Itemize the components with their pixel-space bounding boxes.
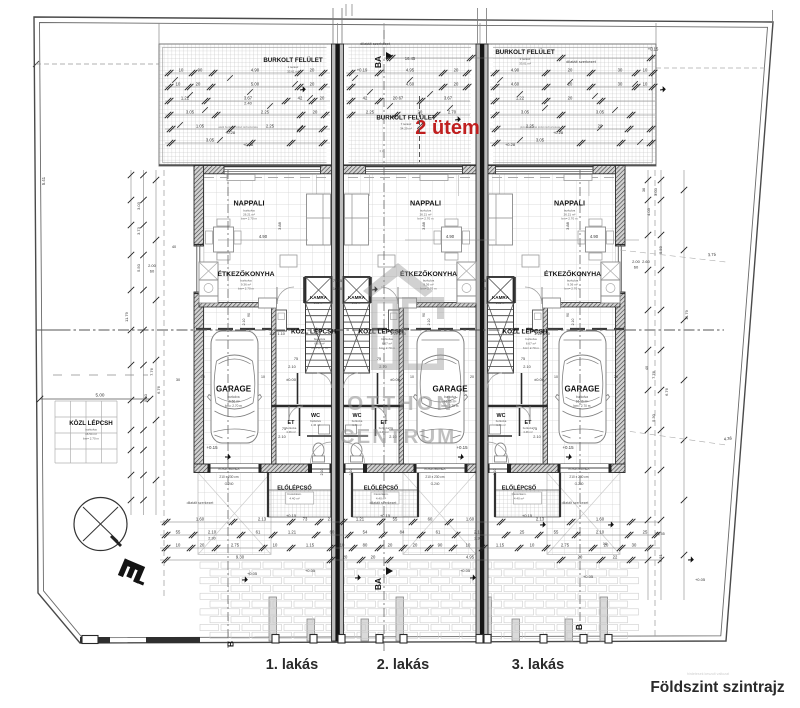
svg-text:2.13: 2.13 bbox=[536, 517, 545, 522]
svg-text:16.56 m²: 16.56 m² bbox=[227, 400, 240, 404]
svg-text:4.90: 4.90 bbox=[251, 68, 260, 73]
svg-text:10: 10 bbox=[643, 68, 648, 73]
svg-text:2.10: 2.10 bbox=[571, 319, 575, 326]
svg-text:2.25: 2.25 bbox=[366, 110, 375, 115]
svg-text:10: 10 bbox=[333, 287, 337, 291]
svg-text:1.15 1.10: 1.15 1.10 bbox=[269, 332, 285, 336]
svg-text:hirdetesek keszult valtozat: hirdetesek keszult valtozat bbox=[687, 672, 729, 676]
svg-text:2.13: 2.13 bbox=[258, 517, 267, 522]
svg-text:1.05: 1.05 bbox=[196, 124, 205, 129]
svg-text:±0.00: ±0.00 bbox=[286, 377, 297, 382]
svg-text:1.51 m²: 1.51 m² bbox=[314, 301, 324, 305]
svg-text:4.90: 4.90 bbox=[590, 234, 599, 239]
svg-text:G-240: G-240 bbox=[225, 482, 234, 486]
svg-text:2.30: 2.30 bbox=[208, 537, 215, 541]
svg-text:NAPPALI: NAPPALI bbox=[233, 199, 264, 208]
svg-text:2.10: 2.10 bbox=[523, 365, 530, 369]
svg-text:2.10: 2.10 bbox=[533, 435, 540, 439]
svg-text:20: 20 bbox=[313, 110, 318, 115]
svg-text:ÉTKEZŐKONYHA: ÉTKEZŐKONYHA bbox=[544, 269, 601, 278]
svg-text:3. lakás: 3. lakás bbox=[512, 657, 564, 673]
svg-text:burkolva: burkolva bbox=[576, 395, 588, 399]
svg-text:20: 20 bbox=[568, 96, 573, 101]
svg-text:2 ütem: 2 ütem bbox=[415, 117, 479, 139]
svg-text:42: 42 bbox=[363, 96, 368, 101]
svg-text:75: 75 bbox=[521, 357, 525, 361]
svg-text:80: 80 bbox=[363, 543, 368, 548]
svg-text:10: 10 bbox=[273, 543, 278, 548]
svg-text:84: 84 bbox=[400, 530, 405, 535]
svg-text:2.10: 2.10 bbox=[349, 469, 353, 476]
svg-text:2.70: 2.70 bbox=[448, 110, 457, 115]
svg-text:1.51 m²: 1.51 m² bbox=[352, 301, 362, 305]
svg-text:OTTHON: OTTHON bbox=[347, 392, 455, 415]
svg-text:90: 90 bbox=[247, 313, 251, 317]
svg-text:Csúszásm.: Csúszásm. bbox=[374, 492, 389, 496]
svg-text:2.10: 2.10 bbox=[474, 530, 483, 535]
svg-text:bm= 2.70 m: bm= 2.70 m bbox=[225, 404, 242, 408]
svg-text:2.10: 2.10 bbox=[288, 365, 295, 369]
svg-text:1.46 m²: 1.46 m² bbox=[496, 423, 506, 427]
svg-text:20: 20 bbox=[614, 375, 618, 379]
svg-text:G-240: G-240 bbox=[431, 482, 440, 486]
svg-text:2.60: 2.60 bbox=[642, 259, 651, 264]
svg-text:3 terasz: 3 terasz bbox=[520, 57, 531, 61]
svg-text:2.00: 2.00 bbox=[632, 259, 641, 264]
svg-text:burkolva: burkolva bbox=[525, 337, 537, 341]
svg-text:20: 20 bbox=[196, 82, 201, 87]
svg-text:6.76: 6.76 bbox=[156, 385, 161, 394]
svg-text:3.88: 3.88 bbox=[565, 221, 570, 230]
svg-text:3.05: 3.05 bbox=[206, 138, 215, 143]
svg-text:KÖZL LÉPCSH: KÖZL LÉPCSH bbox=[69, 419, 113, 427]
svg-text:NAPPALI: NAPPALI bbox=[410, 199, 441, 208]
svg-text:210 x 230 cm: 210 x 230 cm bbox=[219, 475, 238, 479]
svg-text:7.76: 7.76 bbox=[651, 370, 656, 379]
svg-text:+0.05: +0.05 bbox=[583, 574, 594, 579]
svg-text:33.01 m²: 33.01 m² bbox=[519, 62, 531, 66]
svg-text:55: 55 bbox=[176, 530, 181, 535]
svg-text:4.90: 4.90 bbox=[259, 234, 268, 239]
svg-text:2.10: 2.10 bbox=[278, 435, 285, 439]
svg-text:+0.15: +0.15 bbox=[286, 513, 297, 518]
svg-text:KAMRA: KAMRA bbox=[348, 295, 366, 300]
svg-text:3.88: 3.88 bbox=[277, 221, 282, 230]
svg-text:10: 10 bbox=[410, 375, 414, 379]
svg-text:61: 61 bbox=[436, 530, 441, 535]
svg-text:10: 10 bbox=[554, 375, 558, 379]
svg-text:20: 20 bbox=[343, 555, 348, 560]
svg-text:30: 30 bbox=[176, 378, 180, 382]
svg-text:20: 20 bbox=[201, 375, 205, 379]
svg-text:4.60: 4.60 bbox=[511, 82, 520, 87]
svg-text:bm= 2.70 m: bm= 2.70 m bbox=[241, 217, 257, 221]
svg-text:3.05: 3.05 bbox=[536, 138, 545, 143]
svg-text:burkolva: burkolva bbox=[381, 337, 393, 341]
svg-text:16.45: 16.45 bbox=[405, 56, 416, 61]
svg-text:+0.05: +0.05 bbox=[695, 577, 706, 582]
svg-text:2.30: 2.30 bbox=[474, 537, 481, 541]
svg-text:5.00: 5.00 bbox=[251, 82, 260, 87]
svg-text:+0.15: +0.15 bbox=[456, 445, 468, 450]
svg-text:1.21: 1.21 bbox=[356, 517, 365, 522]
svg-text:+0.05: +0.05 bbox=[305, 568, 316, 573]
svg-text:25: 25 bbox=[643, 530, 648, 535]
svg-text:5.00: 5.00 bbox=[96, 393, 105, 398]
svg-text:5.30: 5.30 bbox=[651, 413, 656, 422]
svg-text:B: B bbox=[226, 641, 236, 647]
svg-text:7 terasz: 7 terasz bbox=[401, 122, 412, 126]
svg-text:2.10: 2.10 bbox=[320, 469, 324, 476]
svg-text:4.46 m²: 4.46 m² bbox=[523, 430, 533, 434]
svg-text:2.25: 2.25 bbox=[261, 110, 270, 115]
svg-text:4.90: 4.90 bbox=[446, 234, 455, 239]
svg-text:60: 60 bbox=[150, 269, 155, 274]
svg-text:4.40 m²: 4.40 m² bbox=[376, 497, 386, 501]
svg-text:1.51 m²: 1.51 m² bbox=[496, 301, 506, 305]
svg-text:G-240: G-240 bbox=[575, 482, 584, 486]
svg-text:burkolva: burkolva bbox=[227, 395, 239, 399]
svg-text:4.46 m²: 4.46 m² bbox=[286, 430, 296, 434]
svg-text:1.15: 1.15 bbox=[306, 543, 315, 548]
svg-text:± ¼: ± ¼ bbox=[380, 149, 385, 153]
svg-text:9.30: 9.30 bbox=[236, 555, 245, 560]
svg-text:bm= 2.70 m: bm= 2.70 m bbox=[312, 346, 328, 350]
svg-text:11.79: 11.79 bbox=[124, 311, 129, 321]
svg-text:20: 20 bbox=[578, 555, 583, 560]
svg-text:75: 75 bbox=[294, 357, 298, 361]
svg-text:4.40 m²: 4.40 m² bbox=[289, 497, 299, 501]
svg-text:burkolva: burkolva bbox=[85, 428, 97, 432]
svg-text:bm= 2.70 m: bm= 2.70 m bbox=[574, 404, 591, 408]
svg-text:22: 22 bbox=[613, 555, 618, 560]
svg-text:2.40: 2.40 bbox=[244, 101, 253, 106]
svg-text:2.10: 2.10 bbox=[427, 319, 431, 326]
svg-text:11.79: 11.79 bbox=[684, 309, 689, 319]
svg-text:36: 36 bbox=[642, 188, 646, 192]
svg-text:20: 20 bbox=[454, 82, 459, 87]
svg-text:60: 60 bbox=[634, 265, 639, 270]
svg-text:dilatált szerkezet: dilatált szerkezet bbox=[562, 501, 589, 505]
svg-text:1.60: 1.60 bbox=[196, 517, 205, 522]
svg-text:1 terasz: 1 terasz bbox=[288, 65, 299, 69]
svg-text:dilatált szerkezet: dilatált szerkezet bbox=[566, 59, 597, 64]
svg-text:BA: BA bbox=[373, 56, 383, 68]
svg-text:75: 75 bbox=[333, 279, 337, 283]
svg-text:ÉTKEZŐKONYHA: ÉTKEZŐKONYHA bbox=[217, 269, 274, 278]
svg-text:75: 75 bbox=[482, 279, 486, 283]
svg-text:3.05: 3.05 bbox=[596, 110, 605, 115]
svg-text:34.29 m²: 34.29 m² bbox=[400, 127, 412, 131]
svg-text:10: 10 bbox=[338, 287, 342, 291]
svg-text:bm= 2.70 m: bm= 2.70 m bbox=[562, 217, 578, 221]
svg-text:5.59: 5.59 bbox=[658, 245, 663, 254]
svg-text:20: 20 bbox=[470, 375, 474, 379]
svg-text:10: 10 bbox=[482, 287, 486, 291]
svg-text:10: 10 bbox=[176, 543, 181, 548]
svg-text:Csúszásm.: Csúszásm. bbox=[512, 492, 527, 496]
svg-text:BURKOLT FELÜLET: BURKOLT FELÜLET bbox=[495, 49, 555, 56]
svg-text:2.75: 2.75 bbox=[561, 543, 570, 548]
svg-text:20: 20 bbox=[310, 82, 315, 87]
svg-text:+0.05: +0.05 bbox=[460, 568, 471, 573]
svg-text:KÜSZÖBLINEA: KÜSZÖBLINEA bbox=[424, 467, 445, 471]
svg-text:+0.15: +0.15 bbox=[206, 445, 218, 450]
svg-text:1.60: 1.60 bbox=[596, 517, 605, 522]
svg-text:90: 90 bbox=[422, 313, 426, 317]
svg-text:210 x 230 cm: 210 x 230 cm bbox=[425, 475, 444, 479]
svg-text:BURKOLT FELÜLET: BURKOLT FELÜLET bbox=[263, 57, 323, 64]
svg-text:dilatált szerkezet: dilatált szerkezet bbox=[360, 41, 391, 46]
svg-text:+0.15: +0.15 bbox=[380, 513, 391, 518]
svg-text:20 67: 20 67 bbox=[393, 96, 404, 101]
svg-text:60: 60 bbox=[330, 530, 335, 535]
svg-text:dilatált szerkezet: dilatált szerkezet bbox=[370, 501, 397, 505]
svg-text:KÖZL LÉPCSH: KÖZL LÉPCSH bbox=[503, 327, 548, 336]
svg-text:210 x 230 cm: 210 x 230 cm bbox=[569, 475, 588, 479]
svg-text:16.56 m²: 16.56 m² bbox=[576, 400, 589, 404]
svg-text:1.60: 1.60 bbox=[466, 517, 475, 522]
svg-text:6.76: 6.76 bbox=[664, 387, 669, 396]
svg-text:30: 30 bbox=[618, 82, 623, 87]
svg-text:10: 10 bbox=[340, 543, 345, 548]
svg-text:±0.00: ±0.00 bbox=[390, 377, 401, 382]
svg-text:20: 20 bbox=[200, 543, 205, 548]
svg-text:20: 20 bbox=[413, 543, 418, 548]
svg-text:40: 40 bbox=[645, 366, 649, 370]
svg-text:20: 20 bbox=[568, 68, 573, 73]
svg-text:25 55: 25 55 bbox=[655, 532, 665, 536]
svg-text:2.10: 2.10 bbox=[596, 530, 605, 535]
svg-text:4.95: 4.95 bbox=[406, 68, 415, 73]
svg-text:20: 20 bbox=[418, 110, 423, 115]
svg-text:7.76: 7.76 bbox=[149, 367, 154, 376]
svg-text:20: 20 bbox=[454, 68, 459, 73]
svg-text:6.67 m²: 6.67 m² bbox=[382, 342, 392, 346]
svg-text:10: 10 bbox=[466, 543, 471, 548]
svg-text:5.50: 5.50 bbox=[136, 263, 141, 272]
svg-text:10: 10 bbox=[530, 543, 535, 548]
svg-text:ELŐLÉPCSŐ: ELŐLÉPCSŐ bbox=[277, 484, 312, 492]
svg-text:2.25: 2.25 bbox=[266, 124, 275, 129]
svg-text:+0.19: +0.19 bbox=[357, 68, 368, 73]
svg-text:90: 90 bbox=[198, 68, 203, 73]
svg-text:GARAGE: GARAGE bbox=[216, 385, 252, 394]
svg-text:75: 75 bbox=[338, 279, 342, 283]
svg-text:25: 25 bbox=[520, 530, 525, 535]
svg-text:CENTRUM: CENTRUM bbox=[340, 425, 457, 448]
svg-text:4.40 m²: 4.40 m² bbox=[514, 497, 524, 501]
svg-text:Földszint szintrajz: Földszint szintrajz bbox=[650, 679, 785, 696]
svg-text:2.10: 2.10 bbox=[493, 469, 497, 476]
svg-text:+0.15: +0.15 bbox=[648, 47, 659, 52]
svg-text:60: 60 bbox=[428, 517, 433, 522]
svg-text:1.15: 1.15 bbox=[496, 543, 505, 548]
svg-text:20: 20 bbox=[320, 96, 325, 101]
svg-text:23: 23 bbox=[328, 517, 333, 522]
svg-text:bm= 2.70 m: bm= 2.70 m bbox=[83, 437, 99, 441]
svg-text:1.21: 1.21 bbox=[288, 530, 297, 535]
svg-text:61: 61 bbox=[256, 530, 261, 535]
svg-text:KÖZL LÉPCSH: KÖZL LÉPCSH bbox=[291, 327, 336, 336]
svg-text:90: 90 bbox=[438, 543, 443, 548]
svg-text:20: 20 bbox=[388, 543, 393, 548]
svg-text:6.67 m²: 6.67 m² bbox=[526, 342, 536, 346]
svg-text:burkolva: burkolva bbox=[314, 337, 326, 341]
svg-text:3.05: 3.05 bbox=[186, 110, 195, 115]
svg-text:3.67: 3.67 bbox=[444, 96, 453, 101]
svg-text:30: 30 bbox=[632, 543, 637, 548]
svg-text:54: 54 bbox=[363, 530, 368, 535]
svg-text:2.75: 2.75 bbox=[231, 543, 240, 548]
svg-text:±0.00: ±0.00 bbox=[534, 377, 545, 382]
svg-text:+0.15: +0.15 bbox=[522, 513, 533, 518]
svg-text:75: 75 bbox=[533, 427, 537, 431]
svg-text:10: 10 bbox=[176, 82, 181, 87]
svg-text:4.03: 4.03 bbox=[646, 207, 651, 216]
svg-text:KÜSZÖBLINEA: KÜSZÖBLINEA bbox=[218, 467, 239, 471]
svg-text:KAMRA: KAMRA bbox=[310, 295, 328, 300]
svg-text:16.54 m²: 16.54 m² bbox=[85, 432, 97, 436]
svg-text:3.03: 3.03 bbox=[653, 187, 658, 196]
svg-text:NAPPALI: NAPPALI bbox=[554, 199, 585, 208]
svg-text:4.95: 4.95 bbox=[466, 555, 475, 560]
svg-text:20: 20 bbox=[310, 68, 315, 73]
svg-text:3.88: 3.88 bbox=[421, 221, 426, 230]
svg-text:2. lakás: 2. lakás bbox=[377, 657, 429, 673]
svg-text:bm= 2.70 m: bm= 2.70 m bbox=[238, 287, 254, 291]
svg-text:ELŐLÉPCSŐ: ELŐLÉPCSŐ bbox=[364, 484, 399, 492]
svg-text:2.00: 2.00 bbox=[148, 263, 157, 268]
svg-text:6.67 m²: 6.67 m² bbox=[314, 342, 324, 346]
svg-text:42: 42 bbox=[298, 96, 303, 101]
svg-text:2.25: 2.25 bbox=[526, 124, 535, 129]
svg-text:dilatált szerkezet: dilatált szerkezet bbox=[187, 501, 214, 505]
svg-text:5.41: 5.41 bbox=[41, 176, 46, 185]
svg-text:10: 10 bbox=[603, 542, 607, 546]
svg-text:+0.05: +0.05 bbox=[247, 571, 258, 576]
svg-text:1. lakás: 1. lakás bbox=[266, 657, 318, 673]
svg-text:bm= 2.70 m: bm= 2.70 m bbox=[523, 346, 539, 350]
svg-text:bm= 2.70 m: bm= 2.70 m bbox=[418, 217, 434, 221]
svg-text:3.75: 3.75 bbox=[708, 252, 717, 258]
svg-text:alatti burkolat külső térburko: alatti burkolat külső térburkolata bbox=[218, 125, 258, 129]
svg-text:KAMRA: KAMRA bbox=[492, 295, 510, 300]
svg-text:KÜSZÖBLINEA: KÜSZÖBLINEA bbox=[568, 467, 589, 471]
svg-text:2.10: 2.10 bbox=[208, 530, 217, 535]
svg-text:1.46 m²: 1.46 m² bbox=[311, 423, 321, 427]
svg-text:20: 20 bbox=[371, 555, 376, 560]
svg-text:30: 30 bbox=[618, 68, 623, 73]
svg-text:+0.15: +0.15 bbox=[562, 445, 574, 450]
svg-text:3.05: 3.05 bbox=[521, 110, 530, 115]
svg-text:B: B bbox=[574, 624, 584, 630]
svg-text:75: 75 bbox=[377, 357, 381, 361]
svg-text:4.90: 4.90 bbox=[511, 68, 520, 73]
svg-text:10: 10 bbox=[643, 82, 648, 87]
svg-text:bm= 2.70 m: bm= 2.70 m bbox=[565, 287, 581, 291]
svg-text:10: 10 bbox=[179, 68, 184, 73]
svg-text:Csúszásm.: Csúszásm. bbox=[287, 492, 302, 496]
svg-text:BA: BA bbox=[373, 578, 383, 590]
svg-text:2.10: 2.10 bbox=[242, 319, 246, 326]
svg-text:73: 73 bbox=[303, 517, 308, 522]
svg-text:55: 55 bbox=[393, 517, 398, 522]
svg-text:90: 90 bbox=[566, 313, 570, 317]
svg-text:10: 10 bbox=[261, 375, 265, 379]
svg-text:55: 55 bbox=[554, 530, 559, 535]
svg-text:ELŐLÉPCSŐ: ELŐLÉPCSŐ bbox=[502, 484, 537, 492]
svg-text:40: 40 bbox=[172, 245, 176, 249]
svg-text:GARAGE: GARAGE bbox=[564, 385, 600, 394]
